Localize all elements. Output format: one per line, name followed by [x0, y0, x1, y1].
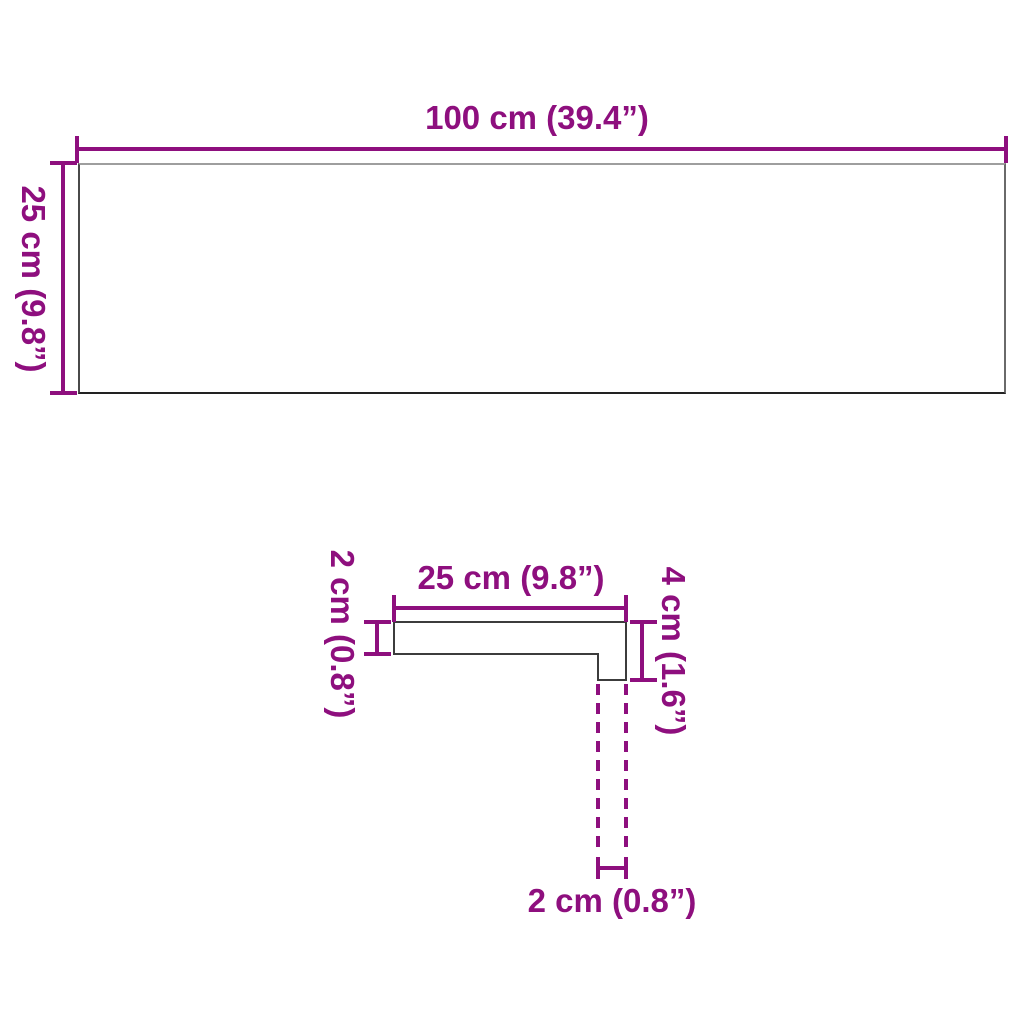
board-outline-rect — [78, 163, 1006, 394]
fig1-height-tick-top — [50, 161, 77, 165]
fig2-left-tick-bottom — [364, 652, 391, 656]
fig2-dashed-projection-right — [624, 684, 628, 855]
fig2-top-tick-left — [392, 595, 396, 622]
fig1-height-label: 25 cm (9.8”) — [13, 159, 53, 399]
fig2-left-label: 2 cm (0.8”) — [322, 514, 362, 754]
fig1-height-tick-bottom — [50, 391, 77, 395]
fig2-top-label: 25 cm (9.8”) — [361, 561, 661, 595]
fig2-top-tick-right — [624, 595, 628, 622]
dimension-diagram: 100 cm (39.4”) 25 cm (9.8”) 25 cm (9.8”)… — [0, 0, 1024, 1024]
fig2-bottom-label: 2 cm (0.8”) — [462, 884, 762, 918]
fig1-width-tick-left — [75, 136, 79, 163]
fig2-dashed-projection-left — [596, 684, 600, 855]
fig2-right-dimension-line — [640, 622, 644, 680]
fig1-width-tick-right — [1004, 136, 1008, 163]
fig1-width-label: 100 cm (39.4”) — [337, 101, 737, 135]
fig2-left-dimension-line — [375, 622, 379, 654]
fig1-height-dimension-line — [61, 163, 65, 394]
profile-outline-shape — [392, 620, 628, 682]
fig2-bottom-dimension-line — [596, 866, 628, 870]
fig2-left-tick-top — [364, 620, 391, 624]
fig2-top-dimension-line — [392, 606, 628, 610]
fig2-right-label: 4 cm (1.6”) — [653, 531, 693, 771]
fig1-width-dimension-line — [76, 147, 1006, 151]
